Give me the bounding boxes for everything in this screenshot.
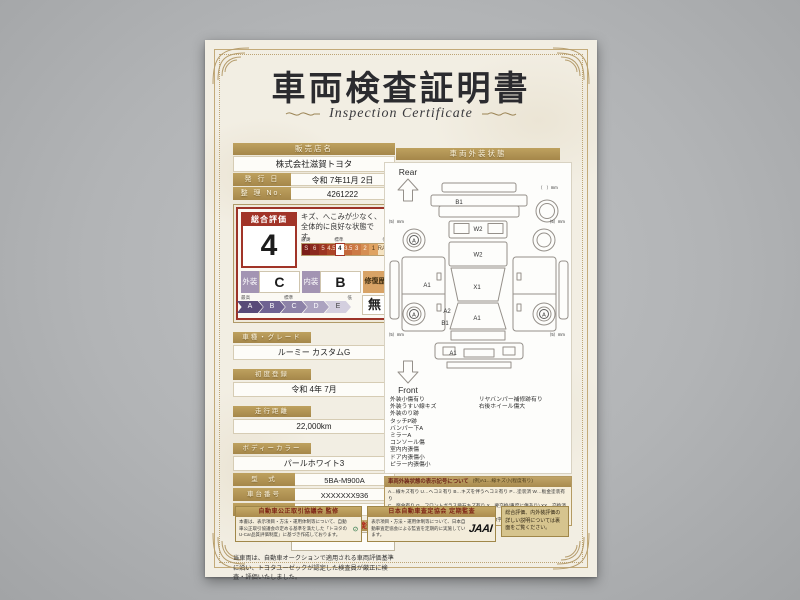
vehicle-info-row: 型 式 5BA-M900A [233,473,395,486]
rear-arrow-icon [398,179,418,201]
exterior-grade-value: C [259,271,300,293]
vehicle-info-value: XXXXXXX936 [295,488,395,501]
mark-wheel-rear-left: A [412,238,416,244]
damage-notes: 外装小傷有り外装うすい線キズ外装のり跡タッチP跡バンパー下AミラーAコンソール傷… [385,397,571,469]
grade-scale-cell: 4.5 [327,244,335,255]
jaai-logo: JAAI [469,523,493,535]
vehicle-stacked-rows: 車種・グレード ルーミー カスタムG 初度登録 令和 4年 7月 走行距離 22… [233,326,395,471]
scale-label-low: 低 [320,295,360,301]
damage-note-item: 外装のり跡 [390,411,474,418]
subtitle-flourish-icon [285,110,321,118]
damage-notes-left: 外装小傷有り外装うすい線キズ外装のり跡タッチP跡バンパー下AミラーAコンソール傷… [385,397,474,469]
tread-depth-rear-right: 〔5〕mm [547,219,565,224]
vehicle-info-row: 車種・グレード ルーミー カスタムG [233,326,395,360]
vehicle-info-label: 走行距離 [233,406,311,417]
interior-grade-value: B [320,271,361,293]
interior-grade-label: 内装 [302,271,320,293]
disclaimer-text: 当車両は、自動車オークションで適用される車両評価基準に沿い、トヨタユーゼックが認… [233,554,395,583]
grade-scale-cell: S [302,244,310,255]
letter-scale-cell: A [237,301,263,313]
tread-depth-rear-left: 〔5〕mm [386,219,404,224]
front-direction-label: Front [398,385,418,395]
grade-scale-labels: 最高 標準 低 [301,236,387,243]
back-page-note: 総合評価、内外装評価の詳しい説明については裏面をご覧ください。 [501,506,569,537]
grade-scale-cell: 3.5 [344,244,352,255]
mark-roof: W2 [474,253,484,259]
fair-trade-badge: 自動車公正取引協議会 監修 本書は、表示項目・方法・運用体制等について、自動車公… [235,506,362,542]
vehicle-info-value: 令和 4年 7月 [233,382,395,397]
grade-scale-cell: 2 [361,244,369,255]
tread-depth-blank: 〔 〕mm [538,185,558,190]
vehicle-info-row: 走行距離 22,000km [233,400,395,434]
damage-note-item: ピラー内張傷小 [390,462,474,469]
jaai-badge: 日本自動車査定協会 定期監査 表示項目・方法・運用体制等について、日本自動車査定… [367,506,496,542]
scale-label-best: 最高 [301,236,316,243]
mark-wheel-front-left: A [412,312,416,318]
exterior-condition-column: 車両外装状態 [384,148,572,526]
dealer-name-header: 販売店名 [233,143,395,155]
vehicle-info-label: ボディーカラー [233,443,311,454]
vehicle-info-label: 車種・グレード [233,332,311,343]
mark-rear-window: W2 [474,227,484,233]
fair-trade-badge-text: 本書は、表示項目・方法・運用体制等について、自動車公正取引協議会の定める基準を満… [239,519,350,539]
overall-grade-value: 4 [243,226,295,266]
certificate-paper: 車両検査証明書 Inspection Certificate 販売店名 株式会社… [205,40,597,577]
issue-date-row: 発 行 日 令和 7年11月 2日 [233,173,395,186]
subtitle-flourish-icon [481,110,517,118]
symbol-legend-title: 車両外装状態の表示記号について [388,477,469,487]
mark-front-left-lower: B1 [441,321,449,327]
grade-scale-cell: 1 [369,244,377,255]
overall-grade-box: 総合評価 4 [241,212,297,268]
vehicle-info-value: ルーミー カスタムG [233,345,395,360]
vehicle-info-value: 22,000km [233,419,395,434]
vehicle-info-label: 初度登録 [233,369,311,380]
mark-front-left-fender: A2 [443,309,451,315]
symbol-legend-line: A…線キズ有り U…ヘコミ有り B…キズを伴うヘコミ有り P…塗装済 W…板金塗… [388,488,568,502]
grade-scale-cell: 5 [319,244,327,255]
overall-grade-label: 総合評価 [243,214,295,226]
grade-scale-cell: 6 [310,244,318,255]
fair-trade-badge-title: 自動車公正取引協議会 監修 [236,507,361,517]
ref-no-label: 整 理 No. [233,187,291,200]
vehicle-info-value: 5BA-M900A [295,473,395,486]
mark-center: X1 [473,285,481,291]
grade-scale: S654.543.5321RA/R [301,243,387,256]
grade-scale-cell: 3 [352,244,360,255]
vehicle-info-label: 型 式 [233,473,295,486]
jaai-badge-text: 表示項目・方法・運用体制等について、日本自動車査定協会による監査を定期的に実施し… [371,519,466,539]
issue-date-label: 発 行 日 [233,173,291,186]
letter-scale: ABCDE [241,301,360,313]
mark-windshield: A1 [473,316,481,322]
rear-direction-label: Rear [399,167,418,177]
green-council-logo-icon [353,522,358,536]
tread-depth-front-left: 〔5〕mm [386,332,404,337]
scale-label-standard: 標準 [316,236,361,243]
vehicle-info-value: パールホワイト3 [233,456,395,471]
damage-note-item: 右後ホイール傷大 [479,404,571,411]
scale-label-best: 最高 [241,295,258,301]
mark-wheel-front-right: A [542,312,546,318]
evaluation-box: 総合評価 4 キズ、へこみが少なく、全体的に良好な状態です。 最高 標準 低 S… [233,204,395,323]
ref-no-row: 整 理 No. 4261222 [233,187,395,200]
scale-label-standard: 標準 [258,295,320,301]
damage-note-item: 室内内張傷 [390,447,474,454]
damage-note-item: タッチP跡 [390,419,474,426]
tread-depth-front-right: 〔5〕mm [547,332,565,337]
footer: 自動車公正取引協議会 監修 本書は、表示項目・方法・運用体制等について、自動車公… [235,506,569,542]
jaai-badge-title: 日本自動車査定協会 定期監査 [368,507,495,517]
mark-front-bumper: A1 [449,351,457,357]
grade-scale-cell: 4 [336,244,344,255]
exterior-diagram-panel: Rear 〔 〕mm B1 W2 W2 〔5〕mm 〔5〕mm A A1 X1 … [384,162,572,474]
vehicle-info-label: 車台番号 [233,488,295,501]
page-title: 車両検査証明書 [205,61,597,110]
ref-no-value: 4261222 [291,187,395,200]
vehicle-info-row: 車台番号 XXXXXXX936 [233,488,395,501]
symbol-legend-example: (例)A1…線キズ小(程度有り) [473,477,533,487]
letter-scale-labels: 最高 標準 低 [241,295,360,301]
damage-note-item: バンパー下A [390,426,474,433]
exterior-grade-label: 外装 [241,271,259,293]
page-subtitle: Inspection Certificate [329,106,473,122]
damage-notes-right: リヤバンパー補修跡有り右後ホイール傷大 [474,397,571,469]
evaluation-comment: キズ、へこみが少なく、全体的に良好な状態です。 [301,212,387,236]
damage-note-item: ドア内張傷小 [390,455,474,462]
photo-background: { "page": { "title": "車両検査証明書", "subtitl… [0,0,800,600]
mark-left-side: A1 [423,283,431,289]
vehicle-info-row: ボディーカラー パールホワイト3 [233,437,395,471]
issue-date-value: 令和 7年11月 2日 [291,173,395,186]
vehicle-info-row: 初度登録 令和 4年 7月 [233,363,395,397]
dealer-name-value: 株式会社滋賀トヨタ [233,156,395,172]
exterior-condition-header: 車両外装状態 [396,148,560,160]
car-diagram: Rear 〔 〕mm B1 W2 W2 〔5〕mm 〔5〕mm A A1 X1 … [385,163,573,395]
mark-rear-gate: B1 [455,200,463,206]
front-arrow-icon [398,361,418,383]
rear-right-wheel [533,229,555,251]
